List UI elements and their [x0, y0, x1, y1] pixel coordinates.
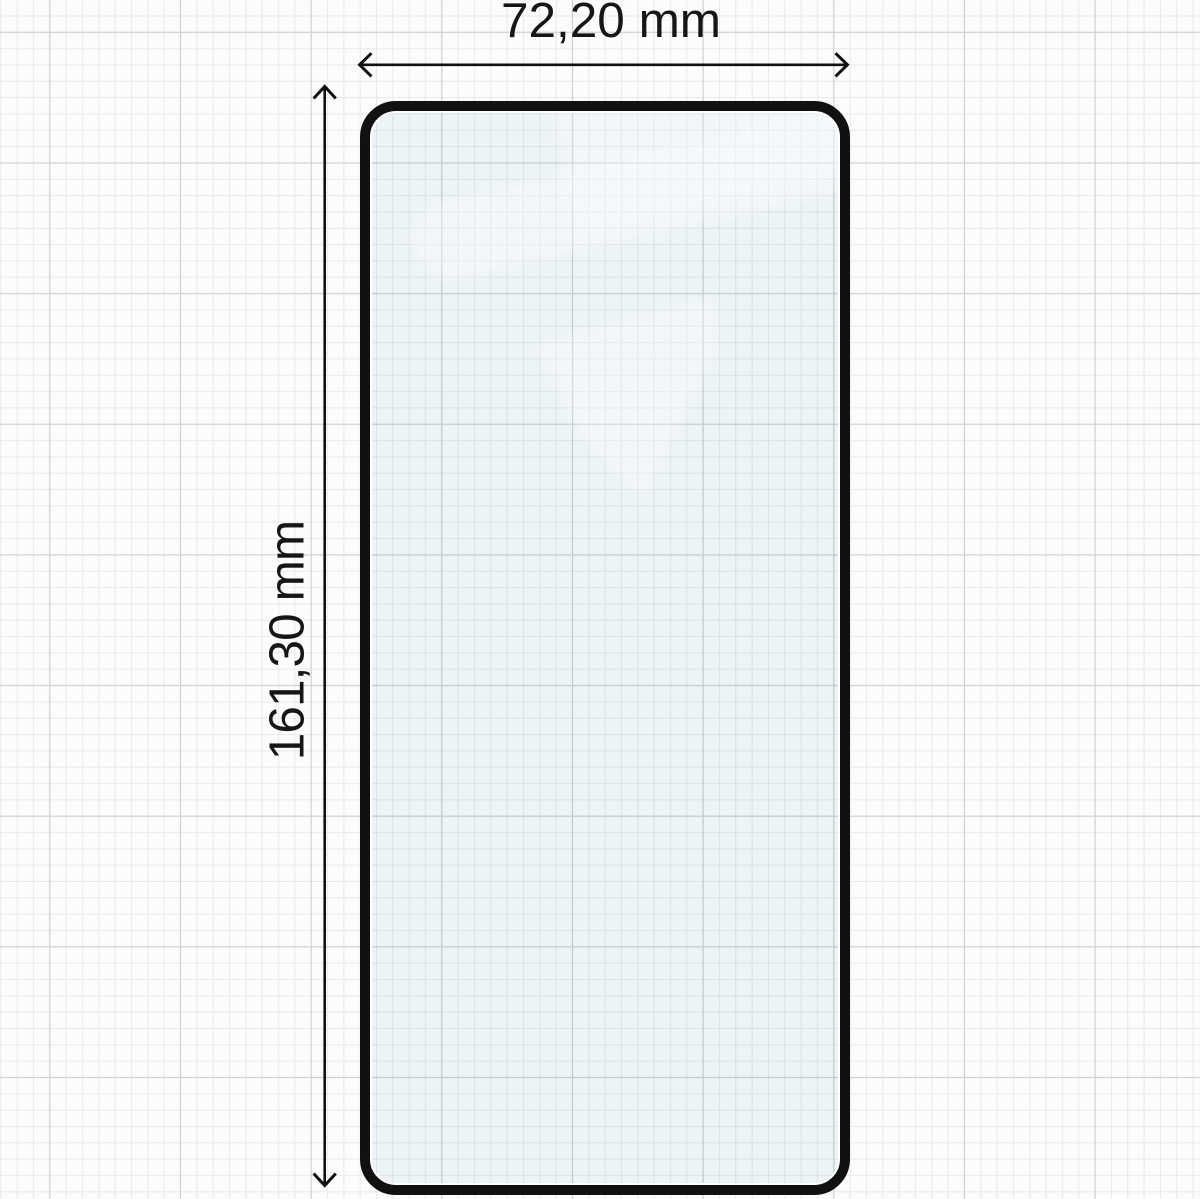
svg-text:161,30 mm: 161,30 mm [260, 521, 315, 761]
svg-text:72,20 mm: 72,20 mm [501, 0, 721, 48]
